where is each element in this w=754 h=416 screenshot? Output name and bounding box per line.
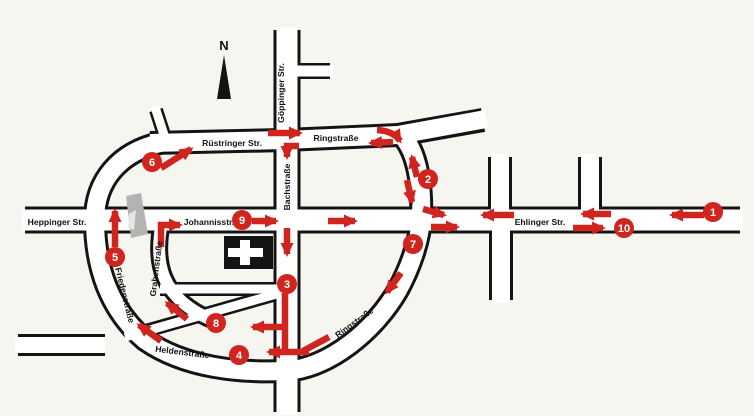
route-stop-7: 7 <box>403 234 423 254</box>
street-label-ruestringer: Rüstringer Str. <box>202 138 262 148</box>
north-arrow-icon <box>217 55 231 99</box>
street-label-ringstrasse-top: Ringstraße <box>314 133 359 143</box>
svg-text:4: 4 <box>236 350 243 362</box>
svg-text:7: 7 <box>410 239 416 251</box>
map-canvas: N Hepp <box>0 0 754 416</box>
street-label-heppinger: Heppinger Str. <box>28 217 87 227</box>
route-stop-2: 2 <box>418 169 438 189</box>
street-label-goeppinger: Göppinger Str. <box>276 63 286 123</box>
street-label-bachstrasse: Bachstraße <box>282 163 292 210</box>
svg-text:6: 6 <box>149 157 155 169</box>
svg-text:10: 10 <box>618 223 630 235</box>
route-stop-4: 4 <box>229 345 249 365</box>
svg-text:2: 2 <box>425 174 431 186</box>
street-label-johannisstr: Johannisstr. <box>184 217 235 227</box>
route-stop-1: 1 <box>703 202 723 222</box>
svg-text:9: 9 <box>239 215 245 227</box>
svg-text:1: 1 <box>710 207 716 219</box>
route-stop-5: 5 <box>105 247 125 267</box>
road-fills <box>15 27 743 415</box>
svg-text:8: 8 <box>213 318 219 330</box>
route-stop-3: 3 <box>277 274 297 294</box>
north-arrow: N <box>217 38 231 99</box>
routing-map: N Hepp <box>0 0 754 416</box>
hospital-building <box>224 236 273 269</box>
street-label-ehlinger: Ehlinger Str. <box>515 217 566 227</box>
route-stop-6: 6 <box>142 152 162 172</box>
north-label: N <box>219 38 228 53</box>
route-stop-10: 10 <box>614 218 634 238</box>
arrow-ringstrasse-west <box>371 142 393 143</box>
route-stop-9: 9 <box>232 210 252 230</box>
svg-text:3: 3 <box>284 279 290 291</box>
route-stop-8: 8 <box>206 313 226 333</box>
svg-text:5: 5 <box>112 252 118 264</box>
